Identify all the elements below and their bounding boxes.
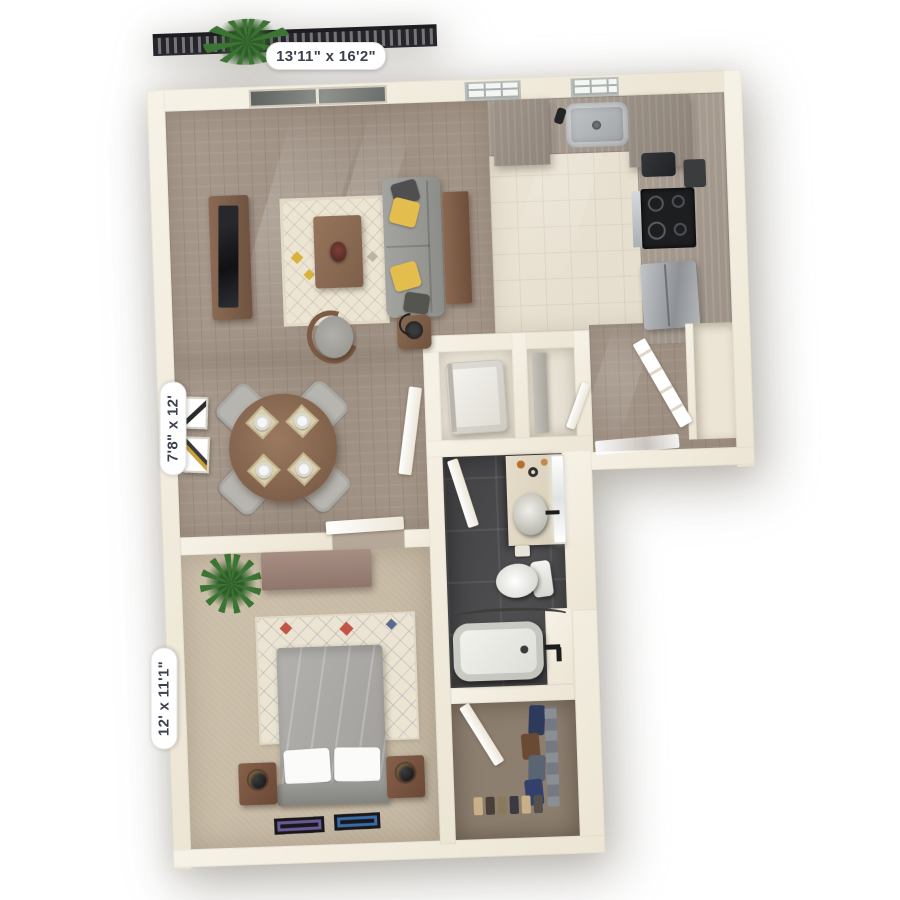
sliding-door-divider (316, 88, 320, 104)
toaster (641, 152, 676, 177)
upper-cabinet-left (492, 98, 550, 166)
living-room-dimension-text: 13'11" x 16'2" (276, 48, 376, 65)
hanging-clothes (528, 705, 545, 736)
dining-area-dimension-text: 7'8" x 12' (165, 395, 182, 462)
sink-faucet-black (545, 510, 559, 514)
living-room-dimension-label: 13'11" x 16'2" (266, 42, 386, 70)
floor-picture-frame (334, 812, 381, 830)
floor-picture-frame (274, 816, 325, 835)
dining-area-dimension-label: 7'8" x 12' (160, 382, 187, 476)
shoe (497, 796, 507, 814)
floor-plan-canvas: 13'11" x 16'2" 7'8" x 12' 12' x 11'1" (0, 0, 900, 900)
tub-faucet-handle (556, 647, 561, 661)
wall-bath-right (561, 450, 597, 611)
shoe (533, 795, 543, 813)
bed-pillow (334, 747, 380, 781)
bed-pillow (283, 748, 331, 785)
headboard (277, 780, 390, 806)
utility-shelf-panel (532, 353, 549, 433)
entry-niche (693, 322, 736, 439)
refrigerator (640, 260, 700, 330)
kitchen-window (570, 77, 619, 98)
sofa-pillow-dark (403, 291, 431, 314)
console-table (442, 191, 472, 304)
wall-art-frame (183, 436, 210, 473)
tv (218, 206, 238, 308)
living-window (464, 80, 521, 101)
bedroom-dimension-label: 12' x 11'1" (151, 648, 178, 750)
hanging-clothes (528, 755, 545, 781)
bedroom-dimension-text: 12' x 11'1" (156, 661, 173, 736)
stove-cooktop (640, 187, 696, 249)
shoe (485, 797, 495, 815)
toilet-paper-holder (515, 545, 530, 557)
shoe (521, 795, 531, 813)
shoe (509, 796, 519, 814)
dresser (261, 549, 372, 591)
bathtub (452, 621, 544, 682)
shoe (473, 797, 483, 815)
small-appliance (683, 159, 706, 188)
floor-plan (0, 0, 900, 900)
